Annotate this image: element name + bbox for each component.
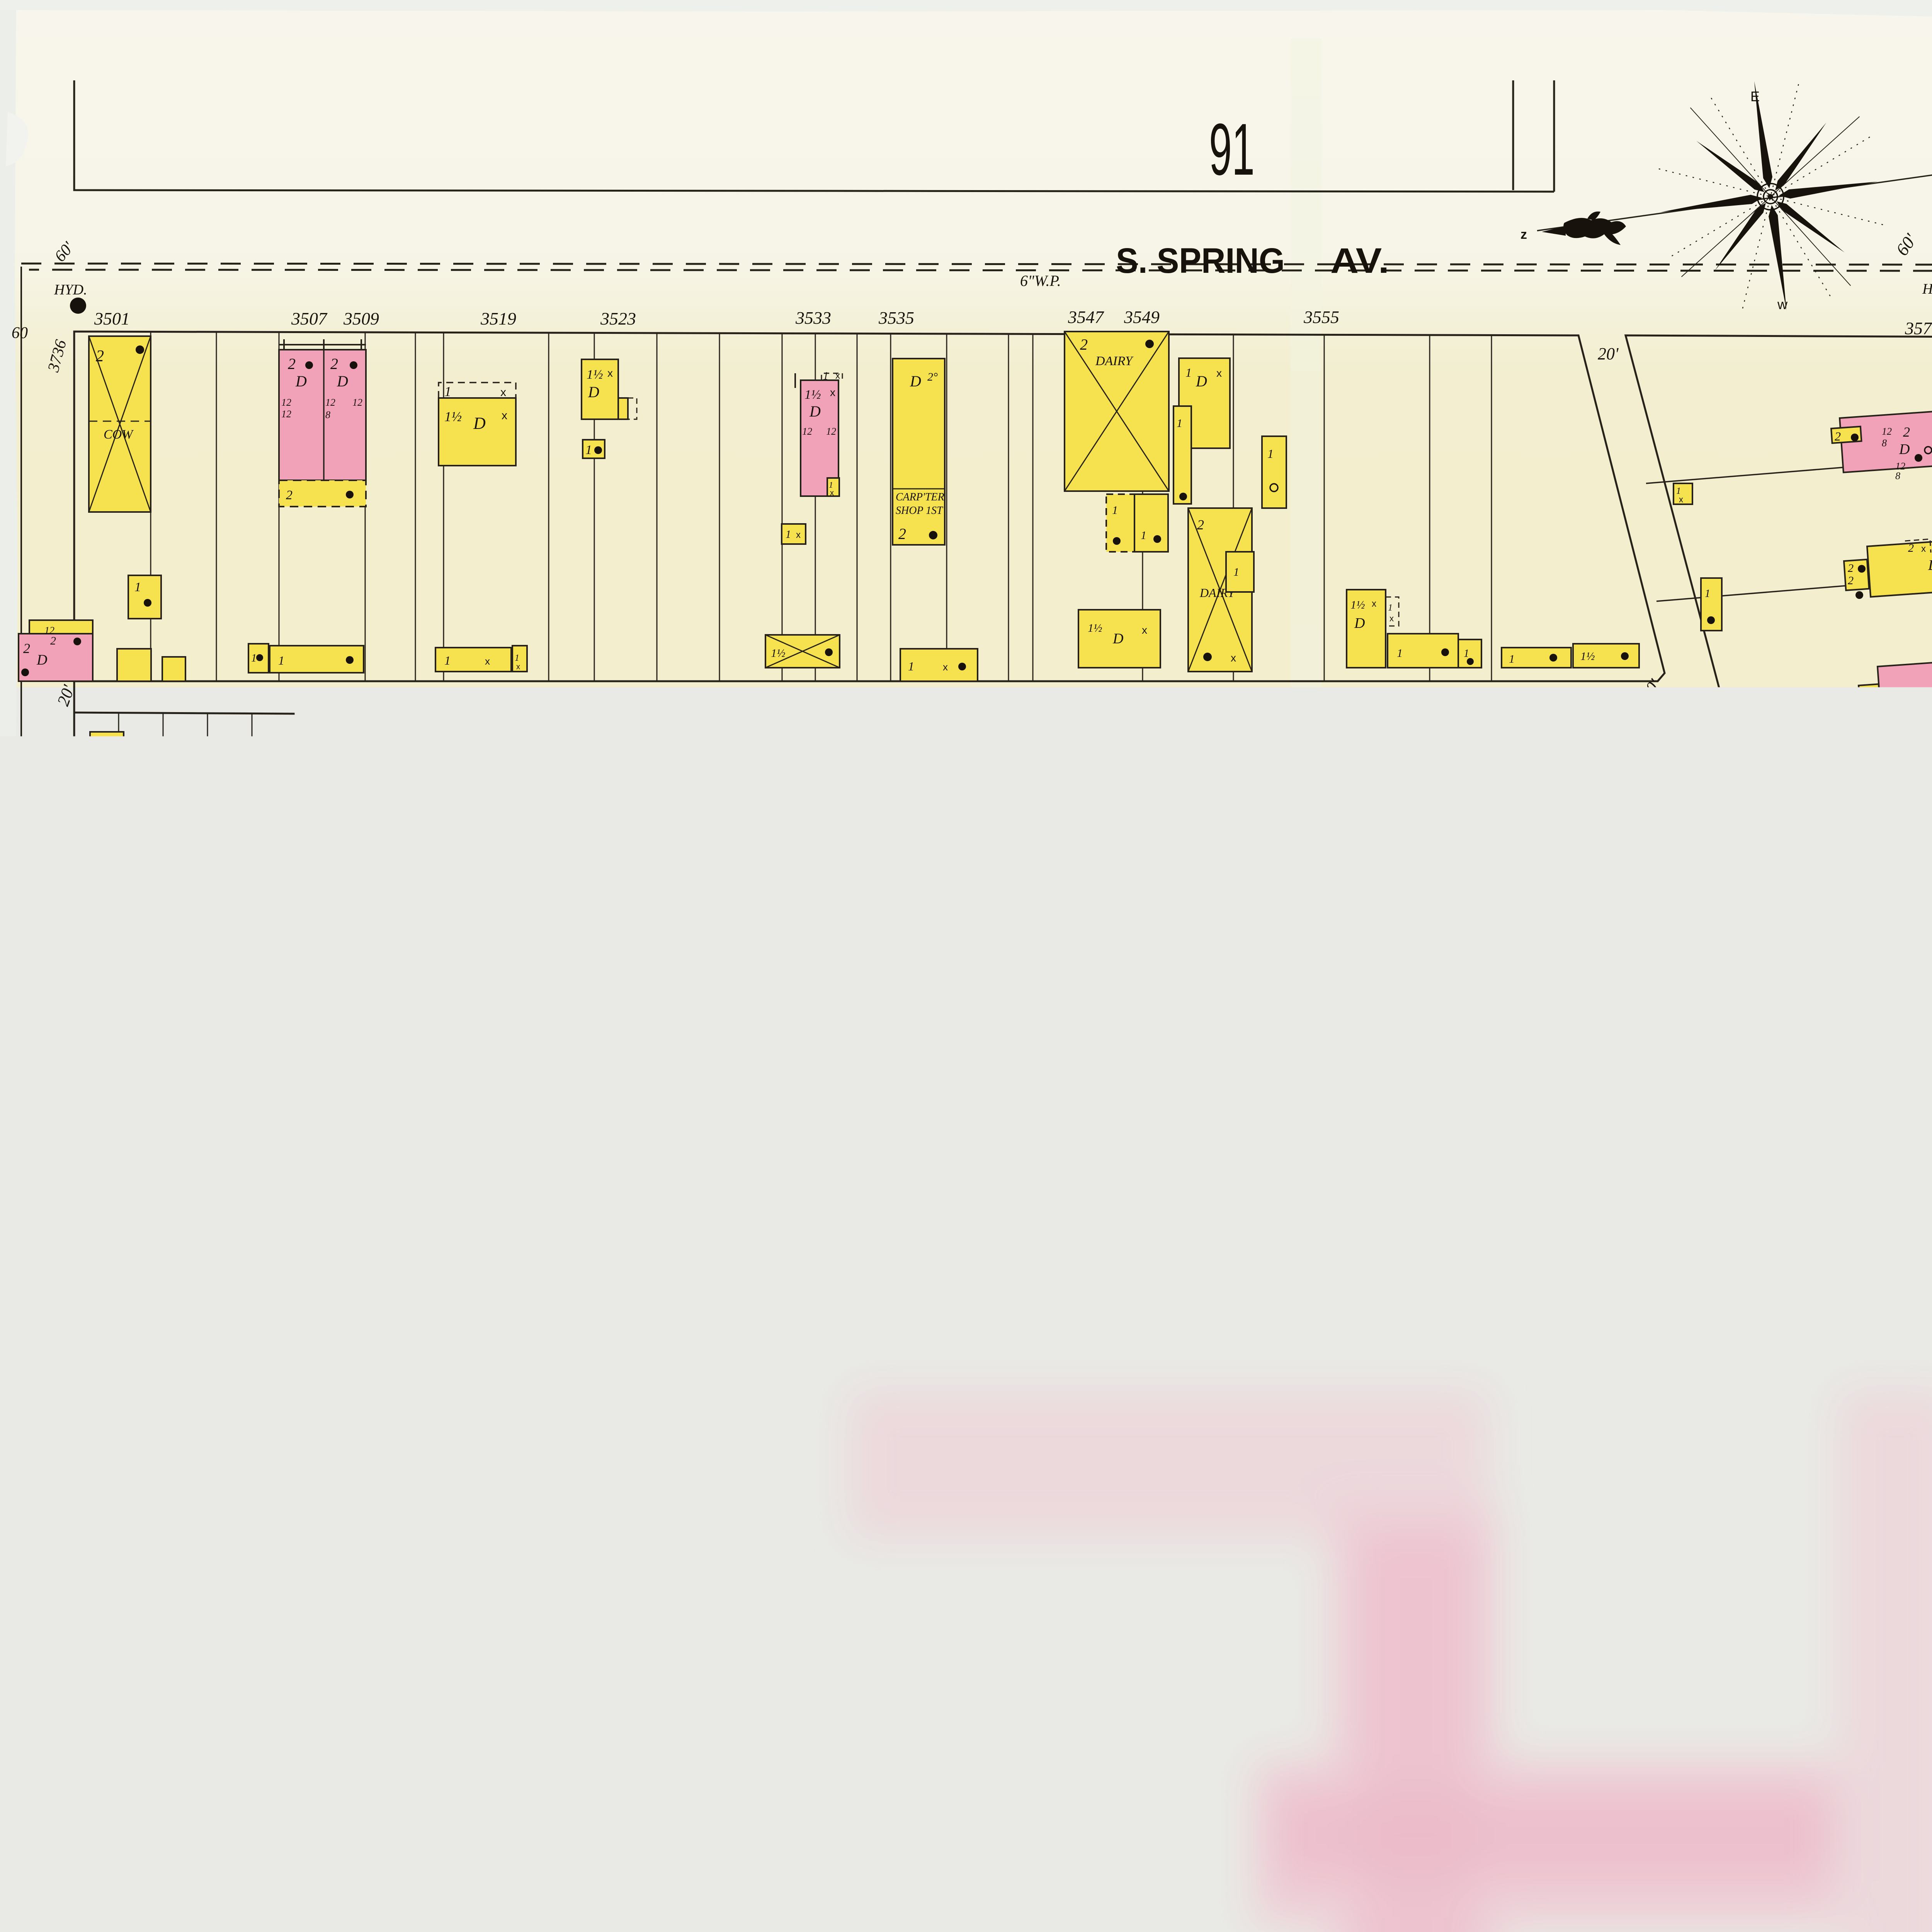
svg-text:8: 8 — [810, 992, 815, 1003]
svg-text:D: D — [1354, 615, 1365, 631]
svg-text:16: 16 — [1414, 1432, 1424, 1443]
svg-text:D: D — [588, 383, 599, 401]
svg-text:"A": "A" — [1879, 1826, 1910, 1850]
svg-text:20': 20' — [1598, 344, 1619, 363]
svg-text:12: 12 — [1882, 426, 1892, 437]
svg-text:E: E — [1750, 88, 1760, 104]
svg-text:12: 12 — [925, 1304, 936, 1316]
svg-text:16: 16 — [1873, 1897, 1883, 1907]
svg-text:12: 12 — [802, 426, 812, 437]
svg-text:ENG.: ENG. — [877, 1495, 903, 1508]
svg-text:1.2.3.4.: 1.2.3.4. — [1211, 1488, 1246, 1501]
svg-text:w: w — [1777, 296, 1788, 312]
svg-text:35 H.P.: 35 H.P. — [874, 1509, 908, 1522]
svg-text:x: x — [796, 530, 801, 540]
svg-text:20: 20 — [1876, 1392, 1886, 1403]
svg-text:ROOM: ROOM — [872, 1242, 907, 1255]
svg-text:3547: 3547 — [1068, 307, 1104, 327]
svg-text:12: 12 — [281, 397, 291, 408]
svg-text:20: 20 — [1358, 1659, 1370, 1672]
svg-text:1½: 1½ — [771, 647, 786, 660]
svg-text:3552: 3552 — [1282, 1054, 1318, 1074]
svg-text:12: 12 — [44, 625, 54, 636]
svg-text:1: 1 — [134, 580, 141, 594]
svg-text:3519: 3519 — [480, 309, 516, 328]
svg-text:D: D — [36, 652, 47, 668]
svg-text:HYD.: HYD. — [54, 282, 87, 298]
svg-text:1: 1 — [1814, 1015, 1820, 1027]
svg-text:3579: 3579 — [1905, 318, 1932, 338]
svg-text:12: 12 — [826, 426, 836, 437]
svg-text:2: 2 — [286, 488, 293, 502]
svg-text:4½: 4½ — [1910, 1799, 1928, 1815]
svg-text:ONLY: ONLY — [1349, 1500, 1381, 1512]
svg-text:2°: 2° — [927, 371, 938, 383]
svg-text:x: x — [1679, 495, 1683, 504]
svg-text:x: x — [1298, 918, 1303, 930]
svg-text:x: x — [1142, 624, 1147, 636]
svg-text:16: 16 — [1220, 1425, 1230, 1437]
svg-text:8: 8 — [942, 969, 947, 980]
svg-text:2: 2 — [1903, 424, 1910, 440]
svg-text:3532: 3532 — [832, 1054, 868, 1073]
svg-text:"E": "E" — [902, 1810, 939, 1837]
svg-text:DAIRY: DAIRY — [1095, 354, 1134, 368]
svg-text:2: 2 — [288, 355, 296, 372]
svg-text:1: 1 — [829, 480, 833, 490]
svg-text:12: 12 — [325, 397, 335, 408]
svg-text:1½: 1½ — [587, 367, 603, 382]
svg-text:2½": 2½" — [1207, 1527, 1231, 1543]
svg-text:1½: 1½ — [444, 409, 462, 424]
svg-text:1: 1 — [870, 1200, 877, 1214]
svg-text:16 20: 16 20 — [1447, 1659, 1473, 1672]
svg-text:2: 2 — [815, 1019, 822, 1034]
svg-text:COW: COW — [104, 427, 134, 442]
svg-text:1: 1 — [1289, 1805, 1295, 1819]
svg-text:4½: 4½ — [1817, 1605, 1834, 1620]
svg-text:x: x — [485, 655, 490, 667]
svg-text:WALL TO: WALL TO — [1335, 1455, 1346, 1495]
svg-text:D: D — [1928, 557, 1932, 573]
svg-text:D: D — [948, 995, 960, 1012]
svg-text:20: 20 — [1155, 1461, 1165, 1473]
svg-text:60: 60 — [12, 324, 28, 342]
svg-text:20: 20 — [1876, 1402, 1886, 1413]
svg-text:3500: 3500 — [78, 1056, 114, 1076]
svg-text:1: 1 — [1737, 1823, 1743, 1836]
svg-text:1: 1 — [585, 443, 592, 457]
svg-text:4189: 4189 — [1092, 1854, 1157, 1891]
svg-text:1: 1 — [866, 1917, 872, 1931]
svg-text:1½: 1½ — [1088, 622, 1102, 634]
svg-text:1: 1 — [278, 653, 284, 667]
svg-text:12: 12 — [865, 1304, 876, 1316]
svg-text:2: 2 — [1908, 542, 1914, 554]
svg-text:IRONING: IRONING — [868, 1221, 916, 1233]
svg-text:1: 1 — [823, 370, 828, 382]
svg-text:D: D — [337, 372, 348, 390]
svg-text:CHAPEL: CHAPEL — [1347, 1803, 1443, 1825]
svg-text:1: 1 — [949, 1503, 955, 1518]
svg-text:1: 1 — [908, 659, 914, 673]
svg-text:8: 8 — [968, 969, 973, 980]
svg-text:1: 1 — [1816, 916, 1821, 928]
svg-text:1: 1 — [1705, 588, 1710, 600]
svg-text:1: 1 — [949, 1430, 955, 1444]
svg-text:HYD.: HYD. — [1922, 281, 1932, 297]
svg-text:12: 12 — [953, 1845, 964, 1855]
svg-text:x: x — [830, 489, 834, 497]
svg-text:8: 8 — [325, 409, 330, 420]
svg-text:1: 1 — [251, 652, 257, 664]
svg-text:4TH ONLY: 4TH ONLY — [1348, 1453, 1359, 1499]
svg-text:91: 91 — [1209, 109, 1255, 190]
svg-text:2: 2 — [50, 634, 56, 647]
svg-text:1: 1 — [1360, 1892, 1366, 1906]
svg-text:16: 16 — [1173, 1456, 1183, 1467]
svg-text:1: 1 — [870, 1430, 877, 1444]
svg-text:1: 1 — [444, 653, 451, 667]
svg-text:TO 4: TO 4 — [1314, 1500, 1342, 1512]
svg-text:D: D — [1196, 372, 1207, 390]
svg-text:24: 24 — [1522, 1803, 1537, 1816]
svg-text:1: 1 — [1430, 1892, 1436, 1906]
svg-text:BAMBERGER: BAMBERGER — [1006, 1111, 1202, 1151]
svg-text:WALL 1ST ONLY: WALL 1ST ONLY — [1880, 1631, 1892, 1708]
svg-text:3507: 3507 — [291, 309, 328, 328]
svg-text:2: 2 — [1848, 574, 1854, 587]
svg-text:20: 20 — [1061, 1425, 1071, 1437]
svg-text:2: 2 — [1080, 336, 1088, 353]
svg-text:1: 1 — [1509, 653, 1515, 665]
svg-text:1: 1 — [1567, 1821, 1573, 1834]
svg-text:x: x — [1310, 960, 1315, 970]
svg-text:16: 16 — [1155, 1473, 1165, 1484]
svg-text:12: 12 — [1886, 1892, 1895, 1902]
svg-text:1: 1 — [1567, 1802, 1573, 1815]
svg-text:1: 1 — [1397, 647, 1403, 660]
svg-text:1½: 1½ — [1350, 599, 1365, 611]
svg-text:"C": "C" — [1113, 1437, 1141, 1457]
svg-text:1: 1 — [271, 1034, 277, 1047]
svg-text:x: x — [1389, 614, 1394, 623]
svg-text:24: 24 — [1257, 1866, 1271, 1879]
svg-text:WALL 1ST.: WALL 1ST. — [1866, 1486, 1918, 1498]
svg-text:1: 1 — [871, 1784, 878, 1798]
svg-text:6"W.P.: 6"W.P. — [1020, 272, 1061, 289]
svg-text:4½: 4½ — [1918, 1397, 1932, 1413]
svg-text:20: 20 — [1207, 1421, 1218, 1432]
svg-text:3538: 3538 — [934, 1054, 970, 1073]
svg-text:1: 1 — [1358, 1532, 1364, 1546]
svg-text:20: 20 — [1604, 1867, 1614, 1879]
svg-text:POTOMAC: POTOMAC — [14, 1516, 58, 1670]
svg-text:1: 1 — [1456, 1575, 1462, 1589]
svg-text:12: 12 — [352, 397, 362, 408]
svg-text:3549: 3549 — [1124, 307, 1160, 327]
svg-text:2: 2 — [23, 641, 30, 656]
svg-text:1: 1 — [1362, 736, 1368, 750]
svg-text:2: 2 — [1835, 429, 1841, 443]
svg-text:x: x — [1825, 949, 1830, 961]
svg-text:4188: 4188 — [1181, 682, 1246, 719]
svg-text:2: 2 — [96, 347, 104, 365]
svg-text:D: D — [473, 414, 486, 433]
svg-text:8: 8 — [1882, 437, 1887, 449]
svg-text:x: x — [502, 409, 507, 422]
svg-text:2: 2 — [1862, 690, 1868, 703]
svg-text:12: 12 — [1652, 1804, 1666, 1816]
svg-text:1: 1 — [1456, 1532, 1462, 1546]
svg-text:68': 68' — [1448, 1453, 1464, 1468]
svg-text:1: 1 — [444, 384, 451, 399]
svg-text:20: 20 — [1136, 1456, 1146, 1467]
svg-text:CARP'TER: CARP'TER — [896, 491, 944, 503]
svg-text:4½: 4½ — [1379, 1535, 1398, 1551]
svg-text:68': 68' — [1912, 1837, 1927, 1850]
svg-text:x: x — [607, 367, 613, 379]
svg-text:AS SHOWN - 4 OUTSIDE 2½" V. P': AS SHOWN - 4 OUTSIDE 2½" V. P'S & FIRE E… — [927, 1644, 1187, 1656]
svg-text:1: 1 — [989, 1430, 996, 1444]
svg-text:1: 1 — [786, 529, 791, 541]
svg-text:4½: 4½ — [1907, 1916, 1925, 1932]
svg-text:S. SPRING: S. SPRING — [1116, 241, 1285, 281]
svg-text:16: 16 — [1891, 1397, 1901, 1408]
svg-text:1: 1 — [942, 1017, 949, 1033]
svg-text:x: x — [500, 386, 506, 399]
svg-text:1: 1 — [1732, 706, 1737, 718]
svg-text:3523: 3523 — [600, 309, 636, 328]
svg-text:x: x — [1231, 652, 1236, 664]
svg-text:x: x — [835, 371, 840, 381]
svg-text:2: 2 — [1799, 988, 1805, 1002]
svg-text:3533: 3533 — [795, 308, 831, 328]
svg-text:"B": "B" — [1372, 1827, 1401, 1848]
svg-text:x: x — [1372, 599, 1376, 609]
svg-text:24: 24 — [1522, 1866, 1537, 1879]
svg-text:D: D — [830, 998, 842, 1016]
svg-text:1: 1 — [1291, 959, 1296, 971]
svg-text:20: 20 — [1207, 1432, 1218, 1443]
svg-text:FR.2: FR.2 — [809, 912, 831, 924]
svg-text:1½: 1½ — [804, 388, 821, 402]
svg-text:2½": 2½" — [1800, 1469, 1823, 1485]
svg-text:1: 1 — [96, 740, 102, 754]
svg-text:16: 16 — [1905, 1394, 1915, 1405]
svg-text:WALL: WALL — [1252, 1500, 1291, 1512]
svg-text:HEAT: STEAM - LIGHTS: ELECT.-: HEAT: STEAM - LIGHTS: ELECT.- — [1012, 1660, 1174, 1673]
svg-text:8: 8 — [1895, 470, 1900, 481]
svg-text:2: 2 — [1197, 517, 1204, 532]
svg-text:20': 20' — [1775, 1007, 1799, 1030]
svg-text:2: 2 — [1848, 562, 1854, 575]
svg-text:12: 12 — [281, 408, 291, 420]
svg-text:1: 1 — [1665, 1802, 1671, 1815]
svg-text:x: x — [516, 663, 520, 671]
svg-text:AV.: AV. — [1291, 1111, 1335, 1151]
svg-text:CONVENT OF THE GOOD SHEPHERD: CONVENT OF THE GOOD SHEPHERD — [923, 1597, 1374, 1624]
svg-text:4½: 4½ — [1445, 1419, 1464, 1435]
svg-text:20: 20 — [1607, 1799, 1618, 1811]
svg-text:85: 85 — [31, 1411, 95, 1493]
svg-text:4½: 4½ — [1143, 1422, 1162, 1438]
svg-text:16: 16 — [1873, 1791, 1883, 1801]
svg-text:3555: 3555 — [1303, 307, 1339, 327]
svg-text:1: 1 — [1185, 366, 1192, 379]
svg-text:1½: 1½ — [1580, 650, 1595, 663]
svg-text:2: 2 — [898, 525, 906, 543]
svg-text:z: z — [1520, 227, 1527, 242]
svg-text:16: 16 — [1220, 1436, 1230, 1447]
svg-text:4½: 4½ — [1904, 1499, 1923, 1515]
svg-text:16: 16 — [1136, 1467, 1146, 1478]
svg-text:1: 1 — [1388, 603, 1393, 613]
svg-text:SHOP 1ST: SHOP 1ST — [896, 505, 944, 517]
svg-text:12: 12 — [1886, 1786, 1895, 1796]
svg-text:3509: 3509 — [343, 309, 379, 328]
svg-text:8: 8 — [810, 980, 815, 992]
svg-text:2: 2 — [330, 355, 338, 372]
svg-text:1: 1 — [515, 653, 519, 663]
svg-text:18': 18' — [1257, 1829, 1273, 1843]
svg-text:1: 1 — [1665, 1823, 1671, 1836]
svg-text:D: D — [1899, 441, 1910, 457]
svg-text:1: 1 — [1267, 447, 1274, 461]
svg-text:12: 12 — [1652, 1854, 1666, 1867]
svg-text:LAUNDRY: LAUNDRY — [925, 1444, 1095, 1466]
svg-text:3535: 3535 — [878, 308, 914, 328]
svg-text:12: 12 — [888, 1760, 899, 1772]
svg-text:D: D — [1112, 631, 1123, 647]
svg-text:20: 20 — [1057, 1509, 1068, 1520]
svg-text:1: 1 — [1789, 916, 1794, 928]
svg-text:12: 12 — [1776, 1855, 1789, 1867]
svg-text:1: 1 — [1360, 1575, 1366, 1589]
svg-text:CITY WATER- 3 INSIDE V. P'S WI: CITY WATER- 3 INSIDE V. P'S WITH 50': 1½… — [927, 1628, 1203, 1640]
svg-text:D: D — [295, 372, 307, 390]
svg-text:V.P. 50'. 1½"HOSE ATT.: V.P. 50'. 1½"HOSE ATT. — [1201, 1472, 1314, 1485]
svg-text:ENG. & DYNAMO: ENG. & DYNAMO — [890, 1787, 979, 1800]
svg-text:1: 1 — [1737, 1802, 1743, 1815]
svg-text:20: 20 — [1414, 1421, 1424, 1432]
svg-text:20: 20 — [1873, 1888, 1883, 1898]
svg-text:1: 1 — [1295, 831, 1302, 845]
svg-text:1: 1 — [1233, 566, 1239, 578]
svg-text:x: x — [1921, 544, 1926, 554]
svg-text:AV.: AV. — [1330, 241, 1389, 281]
svg-text:1: 1 — [1141, 529, 1146, 542]
svg-text:x: x — [1216, 367, 1222, 379]
svg-text:SACRED HEART CLASS: SACRED HEART CLASS — [1163, 1384, 1393, 1405]
svg-text:68': 68' — [1913, 1435, 1930, 1449]
svg-text:D: D — [910, 372, 921, 390]
svg-text:3501: 3501 — [94, 309, 130, 328]
svg-text:x: x — [830, 386, 835, 398]
svg-text:x: x — [943, 661, 948, 673]
svg-text:D: D — [809, 403, 821, 420]
svg-text:1: 1 — [1891, 941, 1897, 953]
svg-text:1: 1 — [1177, 417, 1182, 430]
svg-text:24: 24 — [1257, 1810, 1271, 1823]
svg-text:1: 1 — [1112, 504, 1118, 517]
svg-text:ONLY: ONLY — [1875, 1497, 1901, 1509]
svg-text:1: 1 — [1464, 648, 1469, 660]
svg-text:12: 12 — [1776, 1804, 1789, 1816]
